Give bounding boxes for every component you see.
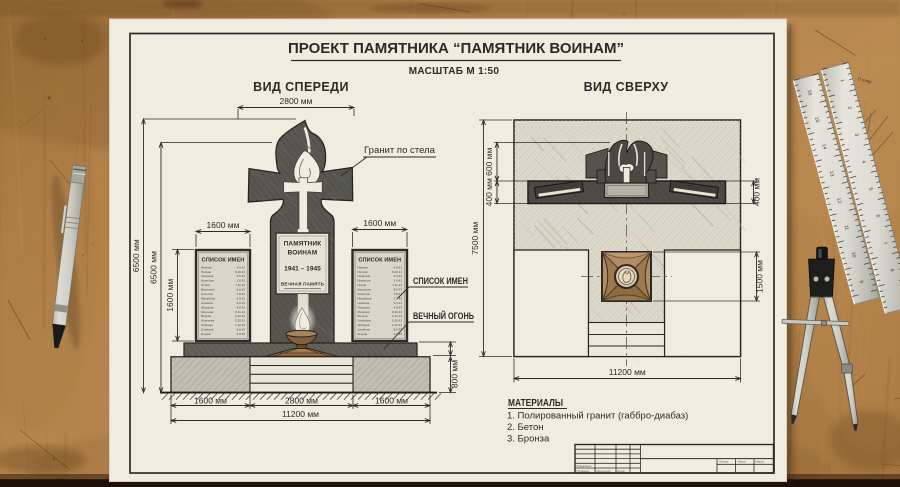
svg-text:400 мм: 400 мм [752, 178, 762, 206]
svg-text:Волков: Волков [201, 314, 211, 318]
svg-text:600 мм: 600 мм [484, 147, 494, 175]
svg-text:8.10.41: 8.10.41 [392, 270, 402, 274]
svg-text:9.9.43: 9.9.43 [237, 301, 246, 305]
svg-text:ВОИНАМ: ВОИНАМ [288, 250, 318, 257]
svg-text:Масса: Масса [738, 460, 747, 464]
svg-text:2800 мм: 2800 мм [285, 396, 318, 406]
svg-text:Егоров: Егоров [201, 332, 211, 336]
svg-text:4.6.45: 4.6.45 [237, 332, 246, 336]
svg-text:3. Бронза: 3. Бронза [507, 434, 550, 445]
svg-text:400 мм: 400 мм [484, 178, 494, 206]
svg-text:СПИСОК ИМЕН: СПИСОК ИМЕН [358, 258, 401, 264]
svg-text:8.10.41: 8.10.41 [235, 270, 245, 274]
svg-text:Петров: Петров [201, 270, 211, 274]
svg-text:Морозов: Морозов [201, 310, 214, 314]
svg-text:11200 мм: 11200 мм [282, 409, 319, 419]
svg-text:СПИСОК ИМЕН: СПИСОК ИМЕН [413, 276, 468, 286]
svg-text:1. Полированный гранит (габбро: 1. Полированный гранит (габбро-диабаз) [507, 411, 688, 422]
svg-text:1600 мм: 1600 мм [363, 218, 396, 228]
svg-text:МАТЕРИАЛЫ: МАТЕРИАЛЫ [508, 398, 563, 409]
svg-text:7.8.41: 7.8.41 [237, 292, 246, 296]
svg-text:7.11.42: 7.11.42 [235, 283, 245, 287]
svg-text:11200 мм: 11200 мм [609, 367, 646, 377]
svg-text:Фёдоров: Фёдоров [201, 305, 214, 309]
svg-text:Копия: Копия [617, 469, 625, 473]
svg-text:Иванов: Иванов [201, 265, 212, 269]
svg-text:1.6.41: 1.6.41 [237, 279, 246, 283]
svg-text:1600 мм: 1600 мм [207, 220, 240, 230]
svg-text:6500 мм: 6500 мм [131, 239, 141, 272]
svg-text:Проверил: Проверил [577, 469, 590, 473]
svg-text:1.6.41: 1.6.41 [394, 279, 403, 283]
svg-text:1600 мм: 1600 мм [375, 396, 408, 406]
svg-text:7500 мм: 7500 мм [470, 222, 480, 255]
svg-text:1600 мм: 1600 мм [165, 279, 175, 312]
svg-text:Попов: Попов [201, 283, 210, 287]
svg-text:Семёнов: Семёнов [201, 328, 214, 332]
svg-text:Михайлов: Михайлов [201, 296, 215, 300]
svg-text:2.9.43: 2.9.43 [237, 296, 246, 300]
svg-text:Лебедев: Лебедев [201, 323, 213, 327]
svg-text:4.9.41: 4.9.41 [237, 265, 246, 269]
svg-text:Алексеев: Алексеев [201, 319, 215, 323]
svg-text:Смирнов: Смирнов [358, 274, 371, 278]
svg-text:6.5.42: 6.5.42 [237, 274, 246, 278]
svg-text:МАСШТАБ М 1:50: МАСШТАБ М 1:50 [409, 66, 500, 77]
svg-text:Кузнецов: Кузнецов [358, 279, 371, 283]
svg-text:ВИД СПЕРЕДИ: ВИД СПЕРЕДИ [253, 80, 349, 94]
svg-text:Волков: Волков [358, 314, 368, 318]
svg-text:800 мм: 800 мм [450, 360, 460, 388]
svg-text:Разработал: Разработал [577, 464, 593, 468]
svg-text:6.5.42: 6.5.42 [394, 274, 403, 278]
svg-text:Семёнов: Семёнов [358, 328, 371, 332]
svg-text:8.6.43: 8.6.43 [394, 288, 403, 292]
svg-text:Лебедев: Лебедев [358, 323, 370, 327]
svg-text:ВИД СВЕРХУ: ВИД СВЕРХУ [584, 80, 669, 94]
svg-text:Фёдоров: Фёдоров [358, 305, 371, 309]
svg-text:1941 – 1945: 1941 – 1945 [284, 266, 321, 273]
svg-text:Васильев: Васильев [201, 288, 215, 292]
svg-text:1.12.43: 1.12.43 [392, 323, 402, 327]
svg-text:ВЕЧНАЯ ПАМЯТЬ: ВЕЧНАЯ ПАМЯТЬ [281, 282, 325, 287]
svg-text:Соколов: Соколов [201, 292, 213, 296]
svg-text:СПИСОК ИМЕН: СПИСОК ИМЕН [202, 258, 245, 264]
svg-text:7.11.42: 7.11.42 [392, 283, 402, 287]
svg-text:Иванов: Иванов [358, 265, 369, 269]
svg-text:6500 мм: 6500 мм [149, 251, 159, 284]
svg-text:Кузнецов: Кузнецов [201, 279, 214, 283]
svg-text:1.12.43: 1.12.43 [235, 323, 245, 327]
svg-text:Смирнов: Смирнов [201, 274, 214, 278]
svg-text:Алексеев: Алексеев [358, 319, 372, 323]
svg-text:Литера: Литера [719, 460, 729, 464]
svg-text:2. Бетон: 2. Бетон [507, 422, 544, 433]
svg-text:8.6.43: 8.6.43 [237, 288, 246, 292]
svg-text:4.8.43: 4.8.43 [237, 305, 246, 309]
svg-text:4.9.41: 4.9.41 [394, 265, 403, 269]
svg-text:Новиков: Новиков [358, 301, 370, 305]
svg-text:8.11.44: 8.11.44 [392, 310, 402, 314]
svg-text:3.12.43: 3.12.43 [235, 314, 245, 318]
svg-text:4.8.43: 4.8.43 [394, 305, 403, 309]
svg-text:Морозов: Морозов [358, 310, 371, 314]
svg-text:1600 мм: 1600 мм [194, 396, 227, 406]
svg-text:Васильев: Васильев [358, 288, 372, 292]
svg-text:Архитектор: Архитектор [596, 469, 611, 473]
svg-text:1500 мм: 1500 мм [755, 260, 765, 293]
svg-text:Масшт.: Масшт. [756, 460, 766, 464]
svg-text:3.12.43: 3.12.43 [392, 314, 402, 318]
svg-text:Гранит по стела: Гранит по стела [364, 145, 435, 155]
svg-text:Попов: Попов [358, 283, 367, 287]
svg-text:Михайлов: Михайлов [358, 296, 372, 300]
svg-text:Петров: Петров [358, 270, 368, 274]
svg-text:2800 мм: 2800 мм [280, 96, 313, 106]
svg-text:Егоров: Егоров [358, 332, 368, 336]
svg-text:ВЕЧНЫЙ ОГОНЬ: ВЕЧНЫЙ ОГОНЬ [413, 310, 475, 321]
svg-text:8.9.43: 8.9.43 [237, 328, 246, 332]
svg-text:5.10.41: 5.10.41 [392, 319, 402, 323]
svg-text:ПАМЯТНИК: ПАМЯТНИК [284, 241, 322, 248]
svg-text:8.11.44: 8.11.44 [235, 310, 245, 314]
svg-text:ПРОЕКТ ПАМЯТНИКА “ПАМЯТНИК ВОИ: ПРОЕКТ ПАМЯТНИКА “ПАМЯТНИК ВОИНАМ” [288, 40, 624, 57]
svg-text:9.9.43: 9.9.43 [394, 301, 403, 305]
svg-text:Новиков: Новиков [201, 301, 213, 305]
svg-text:Соколов: Соколов [358, 292, 370, 296]
svg-text:5.10.41: 5.10.41 [235, 319, 245, 323]
